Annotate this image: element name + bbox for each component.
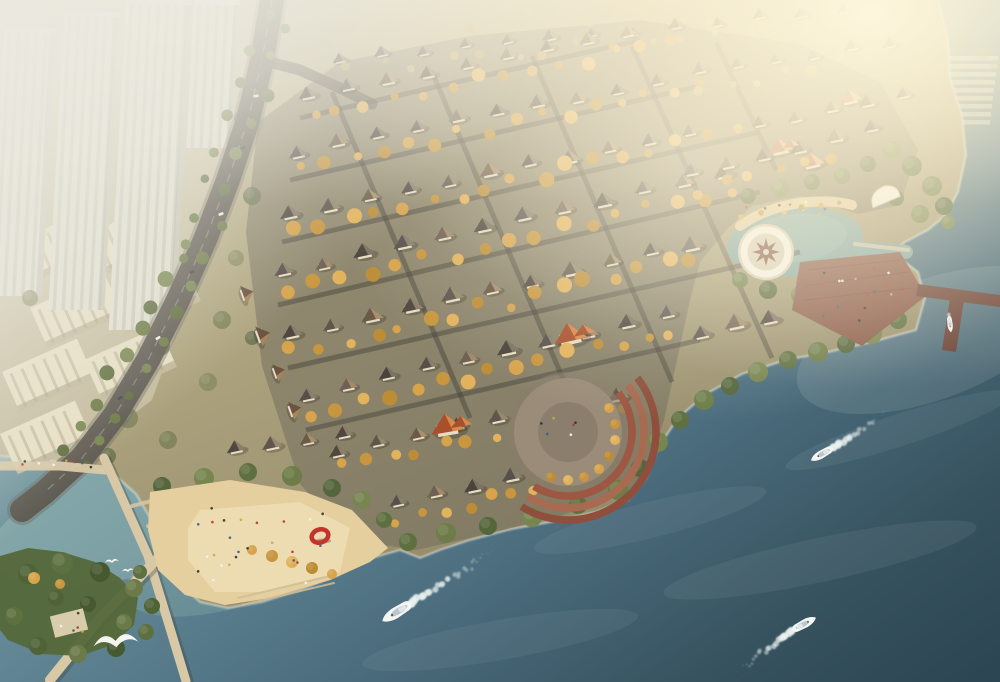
aerial-architectural-rendering [0, 0, 1000, 682]
atmospheric-haze-layer [0, 0, 1000, 682]
screenshot-root [0, 0, 1000, 682]
